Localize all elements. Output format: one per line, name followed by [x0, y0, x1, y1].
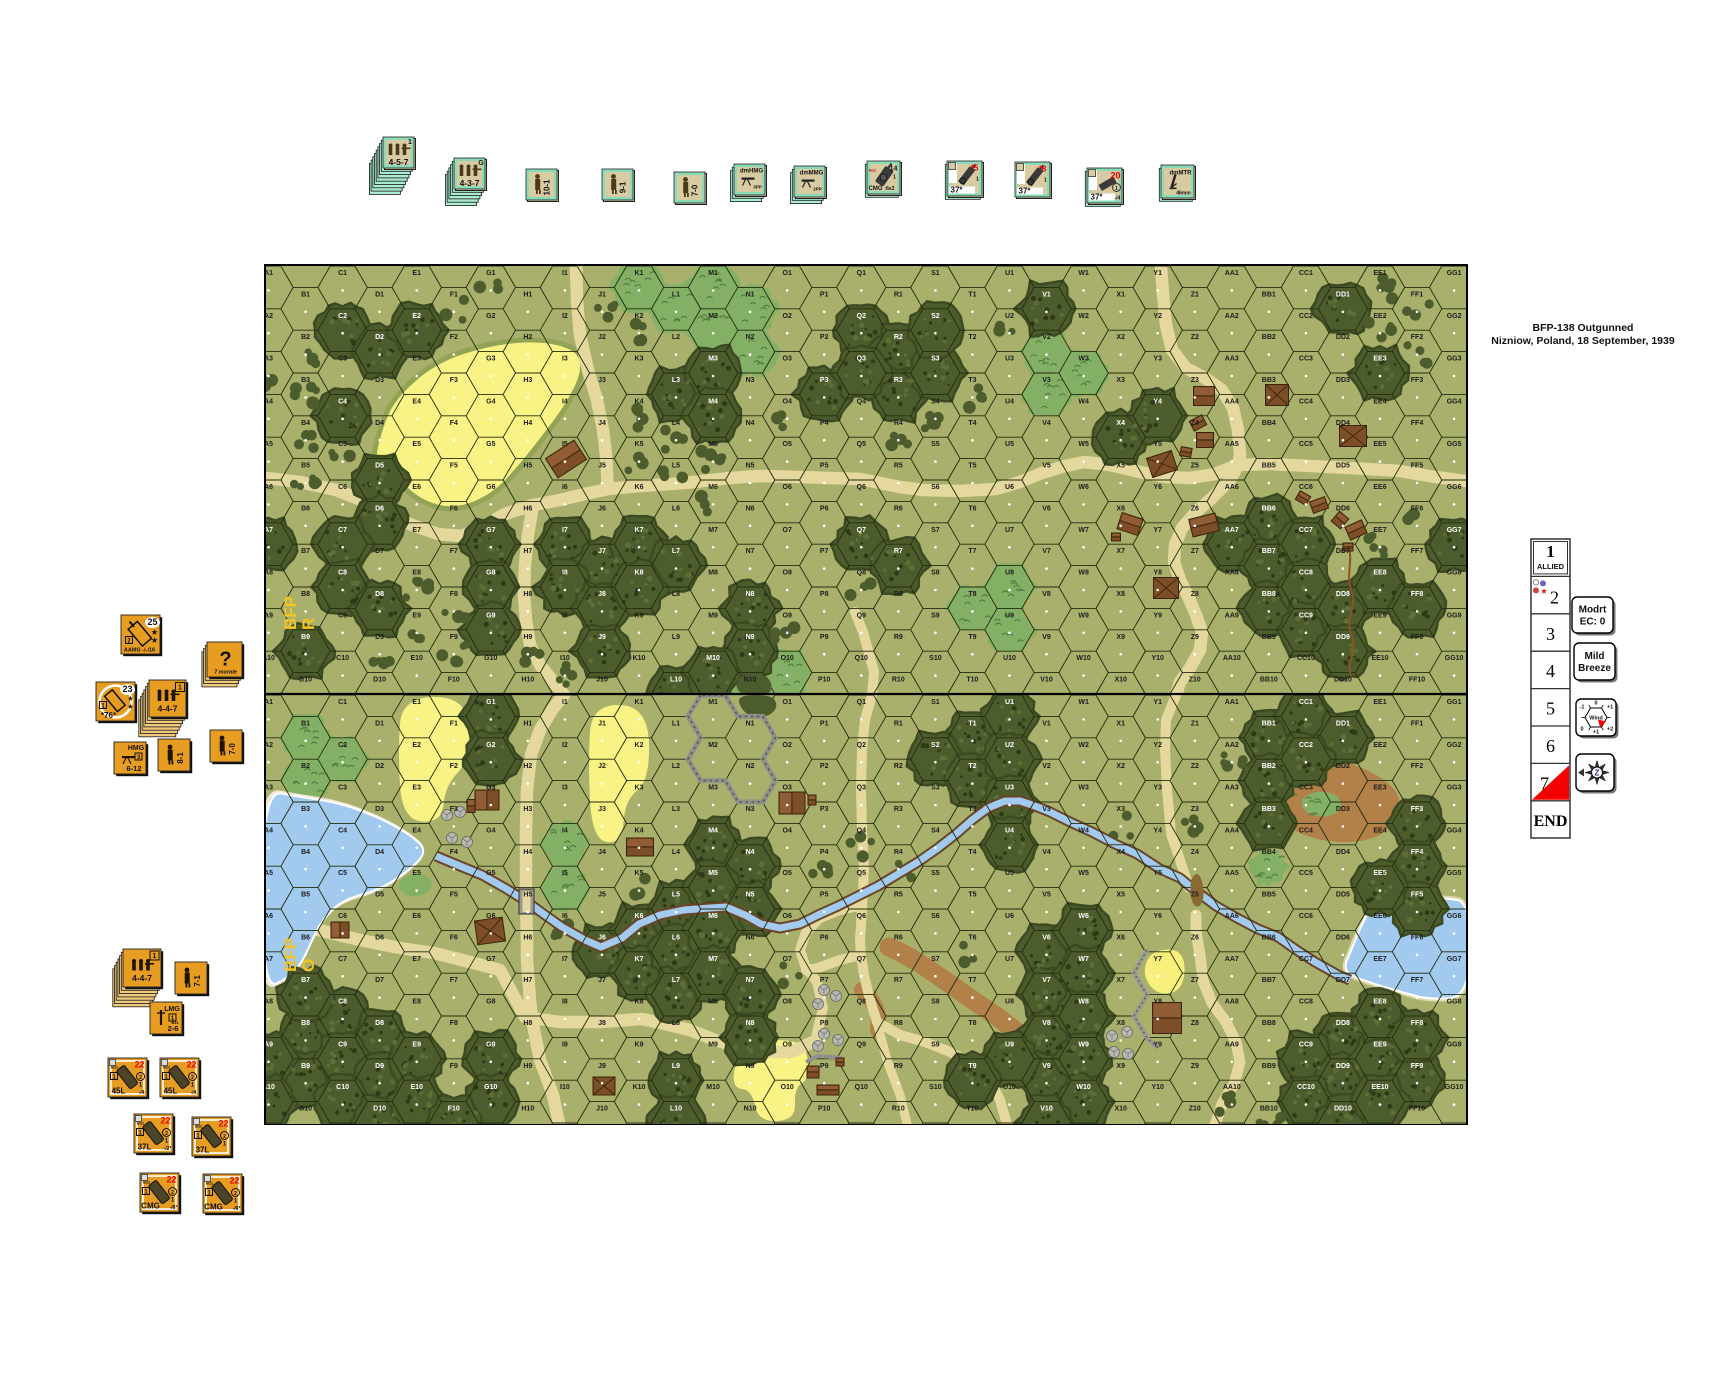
- svg-text:T1: T1: [968, 720, 976, 727]
- svg-text:I6: I6: [562, 484, 568, 491]
- svg-text:-/2*: -/2*: [164, 1146, 172, 1152]
- svg-text:2: 2: [139, 1075, 142, 1081]
- svg-text:G: G: [478, 160, 484, 167]
- svg-text:Z3: Z3: [1191, 377, 1199, 384]
- svg-text:H8: H8: [523, 591, 532, 598]
- svg-text:10-1: 10-1: [543, 179, 552, 196]
- svg-text:O3: O3: [783, 356, 792, 363]
- svg-text:C4: C4: [338, 827, 347, 834]
- svg-text:DD9: DD9: [1336, 634, 1350, 641]
- svg-text:Y10: Y10: [1151, 655, 1164, 662]
- svg-text:N2: N2: [746, 334, 755, 341]
- svg-text:FF7: FF7: [1411, 977, 1424, 984]
- svg-text:H8: H8: [523, 1020, 532, 1027]
- svg-text:B8: B8: [301, 591, 310, 598]
- svg-text:AAMG -/-/16: AAMG -/-/16: [124, 648, 155, 654]
- svg-text:Z2: Z2: [1191, 763, 1199, 770]
- svg-text:S6: S6: [931, 484, 940, 491]
- svg-text:F6: F6: [450, 505, 458, 512]
- svg-text:X8: X8: [1116, 591, 1125, 598]
- svg-text:E1: E1: [412, 270, 421, 277]
- svg-text:I7: I7: [562, 956, 568, 963]
- svg-text:V1: V1: [1042, 291, 1051, 298]
- svg-text:W4: W4: [1078, 398, 1089, 405]
- svg-text:E4: E4: [412, 827, 421, 834]
- svg-text:EE3: EE3: [1373, 785, 1386, 792]
- svg-text:V5: V5: [1042, 463, 1051, 470]
- svg-text:T9: T9: [968, 634, 976, 641]
- svg-text:1: 1: [1044, 178, 1047, 184]
- svg-text:U6: U6: [1005, 484, 1014, 491]
- svg-text:I3: I3: [562, 356, 568, 363]
- svg-text:V6: V6: [1042, 505, 1051, 512]
- svg-text:BFP: BFP: [281, 596, 300, 630]
- svg-text:S8: S8: [931, 999, 940, 1006]
- svg-text:-/4: -/4: [1115, 196, 1121, 202]
- svg-text:2PP: 2PP: [813, 187, 822, 192]
- svg-text:DD2: DD2: [1336, 763, 1350, 770]
- svg-text:AA1: AA1: [1225, 270, 1239, 277]
- svg-text:K3: K3: [635, 785, 644, 792]
- svg-text:F6: F6: [450, 934, 458, 941]
- svg-text:DD4: DD4: [1336, 420, 1350, 427]
- svg-text:J9: J9: [598, 1063, 606, 1070]
- svg-text:U9: U9: [1005, 612, 1014, 619]
- svg-text:B7: B7: [301, 548, 310, 555]
- svg-text:H2: H2: [523, 334, 532, 341]
- svg-text:U10: U10: [1003, 1084, 1016, 1091]
- svg-text:4: 4: [1546, 661, 1555, 681]
- svg-text:F8: F8: [450, 591, 458, 598]
- svg-text:Z: Z: [1595, 769, 1600, 778]
- svg-text:CC9: CC9: [1299, 1041, 1313, 1048]
- svg-text:W7: W7: [1078, 527, 1089, 534]
- svg-text:EE1: EE1: [1373, 270, 1386, 277]
- svg-text:F3: F3: [450, 377, 458, 384]
- svg-text:N8: N8: [746, 1020, 755, 1027]
- svg-text:FF3: FF3: [1411, 806, 1424, 813]
- svg-text:E8: E8: [412, 999, 421, 1006]
- svg-text:U5: U5: [1005, 441, 1014, 448]
- svg-text:AA9: AA9: [1225, 612, 1239, 619]
- svg-text:Z10: Z10: [1189, 677, 1201, 684]
- svg-text:H7: H7: [523, 548, 532, 555]
- svg-text:Q1: Q1: [857, 270, 866, 277]
- svg-text:EE1: EE1: [1373, 699, 1386, 706]
- svg-text:Y6: Y6: [1153, 913, 1162, 920]
- svg-text:C6: C6: [338, 913, 347, 920]
- svg-text:M6: M6: [708, 913, 718, 920]
- svg-text:P2: P2: [820, 763, 829, 770]
- svg-text:25: 25: [147, 617, 157, 627]
- svg-text:R8: R8: [894, 591, 903, 598]
- svg-text:P3: P3: [820, 377, 829, 384]
- svg-text:CMG: CMG: [141, 1202, 160, 1211]
- svg-text:B4: B4: [301, 420, 310, 427]
- svg-text:P7: P7: [820, 977, 829, 984]
- svg-text:4-5-7: 4-5-7: [389, 157, 409, 167]
- svg-text:4-4-7: 4-4-7: [158, 704, 178, 714]
- svg-text:Q8: Q8: [857, 570, 866, 577]
- svg-text:R9: R9: [894, 1063, 903, 1070]
- svg-text:H2: H2: [523, 763, 532, 770]
- svg-text:N9: N9: [746, 634, 755, 641]
- svg-text:L2: L2: [672, 334, 680, 341]
- svg-text:*5: *5: [971, 164, 979, 173]
- svg-text:G5: G5: [486, 870, 495, 877]
- svg-text:+1: +1: [1593, 730, 1599, 736]
- svg-text:Y3: Y3: [1153, 356, 1162, 363]
- svg-text:M10: M10: [706, 655, 720, 662]
- svg-text:L5: L5: [672, 463, 680, 470]
- svg-text:BB8: BB8: [1262, 591, 1276, 598]
- svg-text:S4: S4: [931, 398, 940, 405]
- svg-text:EE5: EE5: [1373, 870, 1386, 877]
- svg-text:Y5: Y5: [1153, 441, 1162, 448]
- svg-text:CMG: CMG: [204, 1203, 223, 1212]
- svg-text:3PP: 3PP: [753, 185, 762, 190]
- svg-text:B10: B10: [299, 1106, 312, 1113]
- svg-text:Y1: Y1: [1153, 270, 1162, 277]
- svg-text:U7: U7: [1005, 527, 1014, 534]
- svg-text:T9: T9: [968, 1063, 976, 1070]
- svg-text:★: ★: [1541, 587, 1548, 595]
- svg-text:P5: P5: [820, 463, 829, 470]
- svg-text:BB1: BB1: [1262, 720, 1276, 727]
- svg-text:GG3: GG3: [1447, 356, 1462, 363]
- svg-text:14: 14: [890, 166, 898, 173]
- svg-text:U2: U2: [1005, 313, 1014, 320]
- svg-text:D2: D2: [375, 763, 384, 770]
- svg-text:J5: J5: [598, 892, 606, 899]
- svg-text:M5: M5: [708, 441, 718, 448]
- svg-text:V8: V8: [1042, 591, 1051, 598]
- svg-text:M2: M2: [708, 742, 718, 749]
- svg-text:O4: O4: [783, 827, 792, 834]
- svg-text:U8: U8: [1005, 570, 1014, 577]
- svg-text:W8: W8: [1078, 570, 1089, 577]
- svg-text:J5: J5: [598, 463, 606, 470]
- svg-text:GG6: GG6: [1447, 913, 1462, 920]
- svg-text:C3: C3: [338, 785, 347, 792]
- svg-text:7-0: 7-0: [691, 184, 700, 196]
- svg-text:CC3: CC3: [1299, 785, 1313, 792]
- svg-text:W9: W9: [1078, 612, 1089, 619]
- svg-text:W7: W7: [1078, 956, 1089, 963]
- svg-text:D6: D6: [375, 934, 384, 941]
- svg-text:W10: W10: [1076, 1084, 1091, 1091]
- svg-text:CC10: CC10: [1297, 655, 1315, 662]
- svg-text:N7: N7: [746, 548, 755, 555]
- svg-text:U9: U9: [1005, 1041, 1014, 1048]
- svg-text:K8: K8: [635, 999, 644, 1006]
- svg-text:X8: X8: [1116, 1020, 1125, 1027]
- svg-text:F4: F4: [450, 420, 458, 427]
- svg-text:P8: P8: [820, 591, 829, 598]
- svg-text:M1: M1: [708, 270, 718, 277]
- svg-text:X10: X10: [1114, 1106, 1127, 1113]
- svg-text:S9: S9: [931, 1041, 940, 1048]
- svg-text:V3: V3: [1042, 806, 1051, 813]
- svg-text:J2: J2: [598, 763, 606, 770]
- svg-text:CC2: CC2: [1299, 313, 1313, 320]
- svg-text:G9: G9: [486, 612, 495, 619]
- svg-text:L8: L8: [672, 1020, 680, 1027]
- svg-text:?: ?: [219, 649, 231, 671]
- svg-text:Y4: Y4: [1153, 827, 1162, 834]
- svg-text:★: ★: [151, 637, 158, 645]
- svg-text:K9: K9: [635, 612, 644, 619]
- svg-text:M4: M4: [708, 827, 718, 834]
- svg-text:Y6: Y6: [1153, 484, 1162, 491]
- svg-text:M1: M1: [708, 699, 718, 706]
- svg-text:GG4: GG4: [1447, 827, 1462, 834]
- svg-text:W9: W9: [1078, 1041, 1089, 1048]
- svg-text:CC7: CC7: [1299, 527, 1313, 534]
- svg-text:X4: X4: [1116, 849, 1125, 856]
- svg-text:CC4: CC4: [1299, 398, 1313, 405]
- svg-text:I5: I5: [562, 870, 568, 877]
- svg-text:Q6: Q6: [857, 484, 866, 491]
- svg-text:V9: V9: [1042, 634, 1051, 641]
- svg-text:GG10: GG10: [1445, 655, 1464, 662]
- svg-text:X4: X4: [1116, 420, 1125, 427]
- svg-text:FF9: FF9: [1411, 1063, 1424, 1070]
- svg-text:E3: E3: [412, 356, 421, 363]
- svg-text:S5: S5: [931, 870, 940, 877]
- svg-text:Q8: Q8: [857, 999, 866, 1006]
- svg-text:H6: H6: [523, 505, 532, 512]
- svg-text:W10: W10: [1076, 655, 1091, 662]
- svg-text:Q9: Q9: [857, 1041, 866, 1048]
- svg-text:46mm: 46mm: [1176, 191, 1191, 197]
- svg-text:J2: J2: [598, 334, 606, 341]
- svg-text:DD8: DD8: [1336, 1020, 1350, 1027]
- svg-text:X9: X9: [1116, 1063, 1125, 1070]
- svg-text:7-1: 7-1: [193, 975, 202, 987]
- svg-text:T10: T10: [966, 677, 978, 684]
- svg-text:Z7: Z7: [1191, 548, 1199, 555]
- svg-text:K4: K4: [635, 398, 644, 405]
- svg-text:R3: R3: [894, 806, 903, 813]
- svg-text:N10: N10: [744, 677, 757, 684]
- svg-text:D7: D7: [375, 977, 384, 984]
- svg-text:J4: J4: [598, 420, 606, 427]
- svg-text:BB7: BB7: [1262, 548, 1276, 555]
- svg-text:E9: E9: [412, 1041, 421, 1048]
- svg-text:EE5: EE5: [1373, 441, 1386, 448]
- svg-text:22: 22: [166, 1175, 176, 1185]
- svg-text:B1: B1: [301, 720, 310, 727]
- svg-text:GG8: GG8: [1447, 999, 1462, 1006]
- svg-text:2: 2: [171, 1190, 174, 1196]
- svg-text:W1: W1: [1078, 270, 1089, 277]
- svg-text:I5: I5: [562, 441, 568, 448]
- svg-text:G1: G1: [486, 270, 495, 277]
- svg-text:EE8: EE8: [1373, 570, 1386, 577]
- svg-text:Y2: Y2: [1153, 742, 1162, 749]
- svg-text:DD10: DD10: [1334, 677, 1352, 684]
- svg-text:O3: O3: [783, 785, 792, 792]
- svg-text:L6: L6: [672, 934, 680, 941]
- svg-text:N5: N5: [746, 892, 755, 899]
- svg-text:BB10: BB10: [1260, 677, 1278, 684]
- svg-text:L7: L7: [672, 977, 680, 984]
- svg-text:B9: B9: [301, 1063, 310, 1070]
- svg-text:GG10: GG10: [1445, 1084, 1464, 1091]
- svg-text:E2: E2: [412, 313, 421, 320]
- svg-text:22: 22: [134, 1060, 144, 1070]
- svg-text:I6: I6: [562, 913, 568, 920]
- svg-text:4-4-7: 4-4-7: [132, 973, 152, 983]
- svg-text:DD1: DD1: [1336, 720, 1350, 727]
- svg-text:M9: M9: [708, 1041, 718, 1048]
- svg-text:O2: O2: [783, 742, 792, 749]
- svg-text:E7: E7: [412, 527, 421, 534]
- svg-text:EE2: EE2: [1373, 313, 1386, 320]
- svg-text:J10: J10: [596, 677, 608, 684]
- svg-text:R9: R9: [894, 634, 903, 641]
- svg-text:0: 0: [1580, 727, 1583, 733]
- svg-text:B3: B3: [301, 806, 310, 813]
- svg-text:B3: B3: [301, 377, 310, 384]
- svg-text:EE2: EE2: [1373, 742, 1386, 749]
- svg-text:1: 1: [976, 177, 979, 183]
- svg-text:C6: C6: [338, 484, 347, 491]
- svg-text:Y5: Y5: [1153, 870, 1162, 877]
- svg-text:H1: H1: [523, 291, 532, 298]
- svg-text:Modrt: Modrt: [1579, 605, 1607, 616]
- svg-text:★: ★: [128, 704, 134, 711]
- svg-text:Z1: Z1: [1191, 291, 1199, 298]
- svg-text:M3: M3: [708, 356, 718, 363]
- svg-text:T4: T4: [968, 849, 976, 856]
- svg-text::6x2: :6x2: [884, 186, 894, 192]
- svg-text:G3: G3: [486, 356, 495, 363]
- svg-text:O2: O2: [783, 313, 792, 320]
- svg-text:S1: S1: [931, 699, 940, 706]
- svg-text:L3: L3: [672, 377, 680, 384]
- svg-text:Z2: Z2: [1191, 334, 1199, 341]
- svg-text:B5: B5: [301, 892, 310, 899]
- svg-text:GG6: GG6: [1447, 484, 1462, 491]
- svg-text:CC3: CC3: [1299, 356, 1313, 363]
- svg-text:M7: M7: [708, 956, 718, 963]
- svg-text:D5: D5: [375, 463, 384, 470]
- svg-text:Q1: Q1: [857, 699, 866, 706]
- svg-text:DD7: DD7: [1336, 977, 1350, 984]
- svg-text:O9: O9: [783, 612, 792, 619]
- svg-text:J6: J6: [598, 934, 606, 941]
- svg-text:X2: X2: [1116, 334, 1125, 341]
- svg-text:K5: K5: [635, 870, 644, 877]
- svg-text:BB10: BB10: [1260, 1106, 1278, 1113]
- svg-text:M6: M6: [708, 484, 718, 491]
- svg-text:K3: K3: [635, 356, 644, 363]
- svg-text:N6: N6: [746, 934, 755, 941]
- svg-text:Z9: Z9: [1191, 634, 1199, 641]
- svg-text:H5: H5: [523, 892, 532, 899]
- svg-text:Q4: Q4: [857, 398, 866, 405]
- svg-text:W3: W3: [1078, 356, 1089, 363]
- svg-text:M8: M8: [708, 570, 718, 577]
- svg-text:AA8: AA8: [1225, 570, 1239, 577]
- svg-text:T2: T2: [968, 763, 976, 770]
- svg-text:T8: T8: [968, 1020, 976, 1027]
- svg-text:Q9: Q9: [857, 612, 866, 619]
- svg-text:AA3: AA3: [1225, 356, 1239, 363]
- svg-text:G6: G6: [486, 484, 495, 491]
- svg-text:Z9: Z9: [1191, 1063, 1199, 1070]
- svg-text:Y2: Y2: [1153, 313, 1162, 320]
- svg-text:F7: F7: [450, 977, 458, 984]
- svg-text:FF6: FF6: [1411, 934, 1424, 941]
- svg-text:EE4: EE4: [1373, 827, 1386, 834]
- svg-text:Z7: Z7: [1191, 977, 1199, 984]
- svg-text:V7: V7: [1042, 977, 1051, 984]
- svg-text:Z1: Z1: [1191, 720, 1199, 727]
- svg-text:Nizniow, Poland, 18 September,: Nizniow, Poland, 18 September, 1939: [1491, 335, 1675, 347]
- svg-text:2: 2: [234, 1191, 237, 1197]
- svg-text:U8: U8: [1005, 999, 1014, 1006]
- svg-text:W4: W4: [1078, 827, 1089, 834]
- svg-text:CC4: CC4: [1299, 827, 1313, 834]
- svg-text:M9: M9: [708, 612, 718, 619]
- svg-text:O10: O10: [781, 1084, 794, 1091]
- svg-text:GG9: GG9: [1447, 612, 1462, 619]
- svg-text:EE9: EE9: [1373, 612, 1386, 619]
- svg-text:FF3: FF3: [1411, 377, 1424, 384]
- svg-text:AA8: AA8: [1225, 999, 1239, 1006]
- svg-text:*76*: *76*: [101, 711, 117, 720]
- svg-text:R10: R10: [892, 1106, 905, 1113]
- svg-text:DD5: DD5: [1336, 892, 1350, 899]
- svg-text:1: 1: [153, 953, 157, 960]
- svg-text:BB3: BB3: [1262, 806, 1276, 813]
- svg-text:N10: N10: [744, 1106, 757, 1113]
- svg-text:I8: I8: [562, 999, 568, 1006]
- svg-text:1: 1: [893, 175, 896, 181]
- svg-text:K4: K4: [635, 827, 644, 834]
- svg-text:V10: V10: [1040, 1106, 1053, 1113]
- svg-text:BB2: BB2: [1262, 334, 1276, 341]
- svg-text:F10: F10: [448, 677, 460, 684]
- svg-text:S3: S3: [931, 785, 940, 792]
- svg-text:-/6*: -/6*: [233, 1206, 241, 1212]
- svg-text:CC6: CC6: [1299, 913, 1313, 920]
- svg-text:N4: N4: [746, 420, 755, 427]
- svg-text:CMG: CMG: [869, 186, 883, 192]
- svg-text:5: 5: [1546, 699, 1555, 719]
- svg-text:V2: V2: [1042, 763, 1051, 770]
- svg-text:AA3: AA3: [1225, 785, 1239, 792]
- svg-text:O6: O6: [783, 484, 792, 491]
- svg-text:22: 22: [229, 1176, 239, 1186]
- svg-text:GG1: GG1: [1447, 270, 1462, 277]
- svg-text:G2: G2: [486, 742, 495, 749]
- svg-text:EE10: EE10: [1371, 1084, 1388, 1091]
- svg-text:M7: M7: [708, 527, 718, 534]
- svg-text:G7: G7: [486, 527, 495, 534]
- svg-text:DD1: DD1: [1336, 291, 1350, 298]
- svg-text:2: 2: [165, 1131, 168, 1137]
- svg-text:S2: S2: [931, 313, 940, 320]
- svg-text:Z8: Z8: [1191, 1020, 1199, 1027]
- svg-text:2: 2: [191, 1075, 194, 1081]
- svg-text:BB5: BB5: [1262, 463, 1276, 470]
- svg-text:AA10: AA10: [1223, 1084, 1241, 1091]
- svg-text:Y3: Y3: [1153, 785, 1162, 792]
